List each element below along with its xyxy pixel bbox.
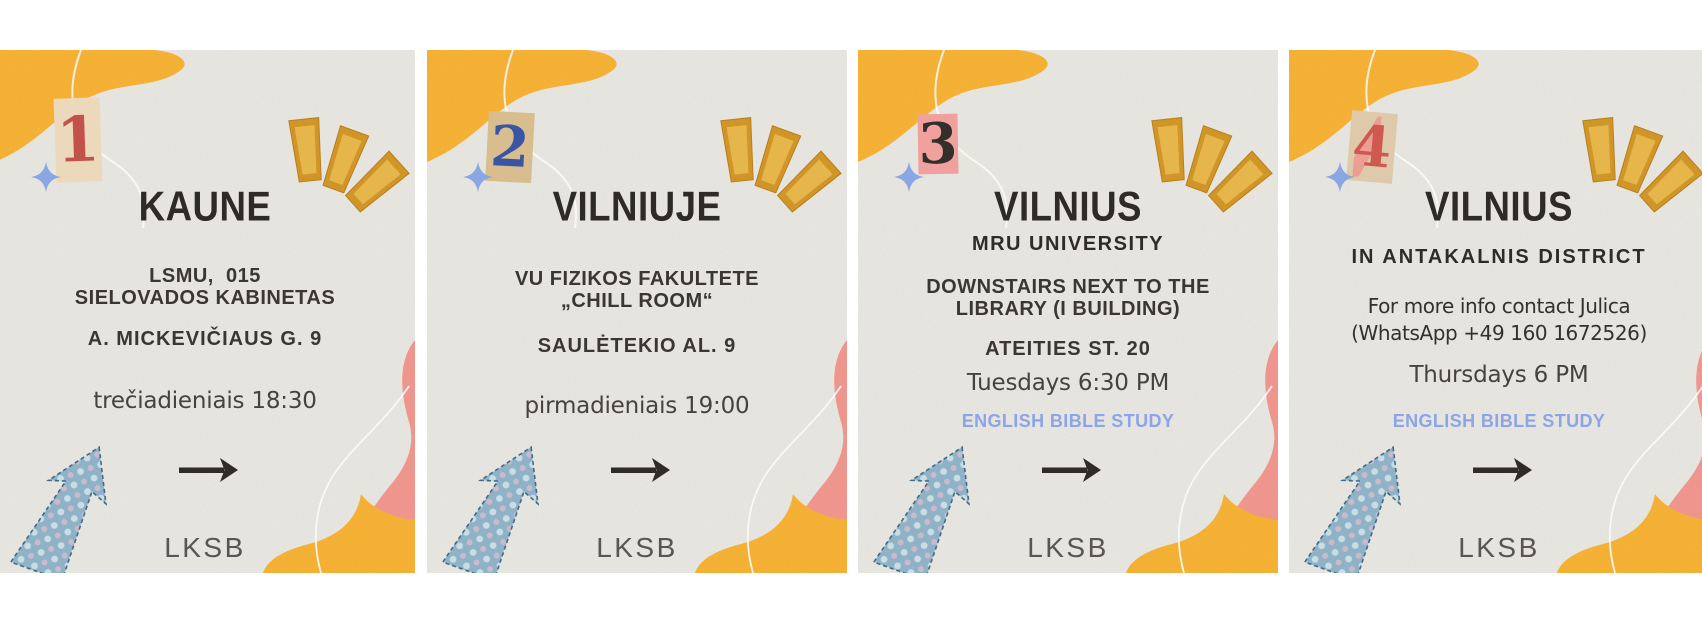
fabric-arrow-icon bbox=[440, 432, 560, 573]
meeting-time: pirmadieniais 19:00 bbox=[427, 393, 847, 419]
event-card-2: 2 VILNIUJE VU FIZIKOS FAKULTETE „CHILL R… bbox=[427, 50, 847, 573]
right-arrow-icon bbox=[1041, 457, 1101, 483]
city-title: KAUNE bbox=[8, 185, 403, 232]
poster-strip: 1 KAUNE LSMU, 015 SIELOVADOS KABINETAS A… bbox=[0, 0, 1702, 630]
city-title: VILNIUJE bbox=[440, 185, 835, 232]
sparkle-icon bbox=[31, 160, 61, 194]
location-lines: LSMU, 015 SIELOVADOS KABINETAS bbox=[0, 265, 415, 309]
location-line: LSMU, 015 bbox=[149, 265, 261, 287]
contact-line: (WhatsApp +49 160 1672526) bbox=[1351, 321, 1647, 345]
city-title: VILNIUS bbox=[1302, 185, 1697, 232]
location-line: LIBRARY (I BUILDING) bbox=[956, 298, 1180, 320]
fabric-arrow-icon bbox=[871, 432, 991, 573]
location-line: „CHILL ROOM“ bbox=[561, 290, 713, 312]
location-lines: DOWNSTAIRS NEXT TO THE LIBRARY (I BUILDI… bbox=[858, 276, 1278, 320]
right-arrow-icon bbox=[610, 457, 670, 483]
sparkle-icon bbox=[1325, 160, 1355, 194]
meeting-time: Tuesdays 6:30 PM bbox=[858, 370, 1278, 396]
venue-subtitle: IN ANTAKALNIS DISTRICT bbox=[1289, 246, 1702, 269]
card-number: 1 bbox=[55, 108, 100, 171]
venue-subtitle: MRU UNIVERSITY bbox=[858, 233, 1278, 256]
english-study-label: ENGLISH BIBLE STUDY bbox=[858, 411, 1278, 432]
fabric-arrow-icon bbox=[1302, 432, 1422, 573]
event-card-1: 1 KAUNE LSMU, 015 SIELOVADOS KABINETAS A… bbox=[0, 50, 415, 573]
english-study-label: ENGLISH BIBLE STUDY bbox=[1289, 411, 1702, 432]
card-number: 4 bbox=[1350, 117, 1394, 176]
street-address: SAULĖTEKIO AL. 9 bbox=[427, 335, 847, 358]
location-lines: VU FIZIKOS FAKULTETE „CHILL ROOM“ bbox=[427, 268, 847, 312]
meeting-time: Thursdays 6 PM bbox=[1289, 362, 1702, 388]
sparkle-icon bbox=[894, 160, 924, 194]
contact-info: For more info contact Julica (WhatsApp +… bbox=[1289, 293, 1702, 347]
meeting-time: trečiadieniais 18:30 bbox=[0, 388, 415, 414]
right-arrow-icon bbox=[1472, 457, 1532, 483]
sparkle-icon bbox=[463, 160, 493, 194]
city-title: VILNIUS bbox=[871, 185, 1266, 232]
street-address: ATEITIES ST. 20 bbox=[858, 338, 1278, 361]
event-card-4: 4 VILNIUS IN ANTAKALNIS DISTRICT For mor… bbox=[1289, 50, 1702, 573]
contact-line: For more info contact Julica bbox=[1368, 294, 1631, 318]
event-card-3: 3 VILNIUS MRU UNIVERSITY DOWNSTAIRS NEXT… bbox=[858, 50, 1278, 573]
card-number: 2 bbox=[489, 118, 531, 176]
card-number: 3 bbox=[918, 116, 958, 173]
location-line: DOWNSTAIRS NEXT TO THE bbox=[926, 276, 1210, 298]
location-line: SIELOVADOS KABINETAS bbox=[75, 287, 335, 309]
fabric-arrow-icon bbox=[8, 432, 128, 573]
location-line: VU FIZIKOS FAKULTETE bbox=[515, 268, 759, 290]
right-arrow-icon bbox=[178, 457, 238, 483]
street-address: A. MICKEVIČIAUS G. 9 bbox=[0, 328, 415, 351]
